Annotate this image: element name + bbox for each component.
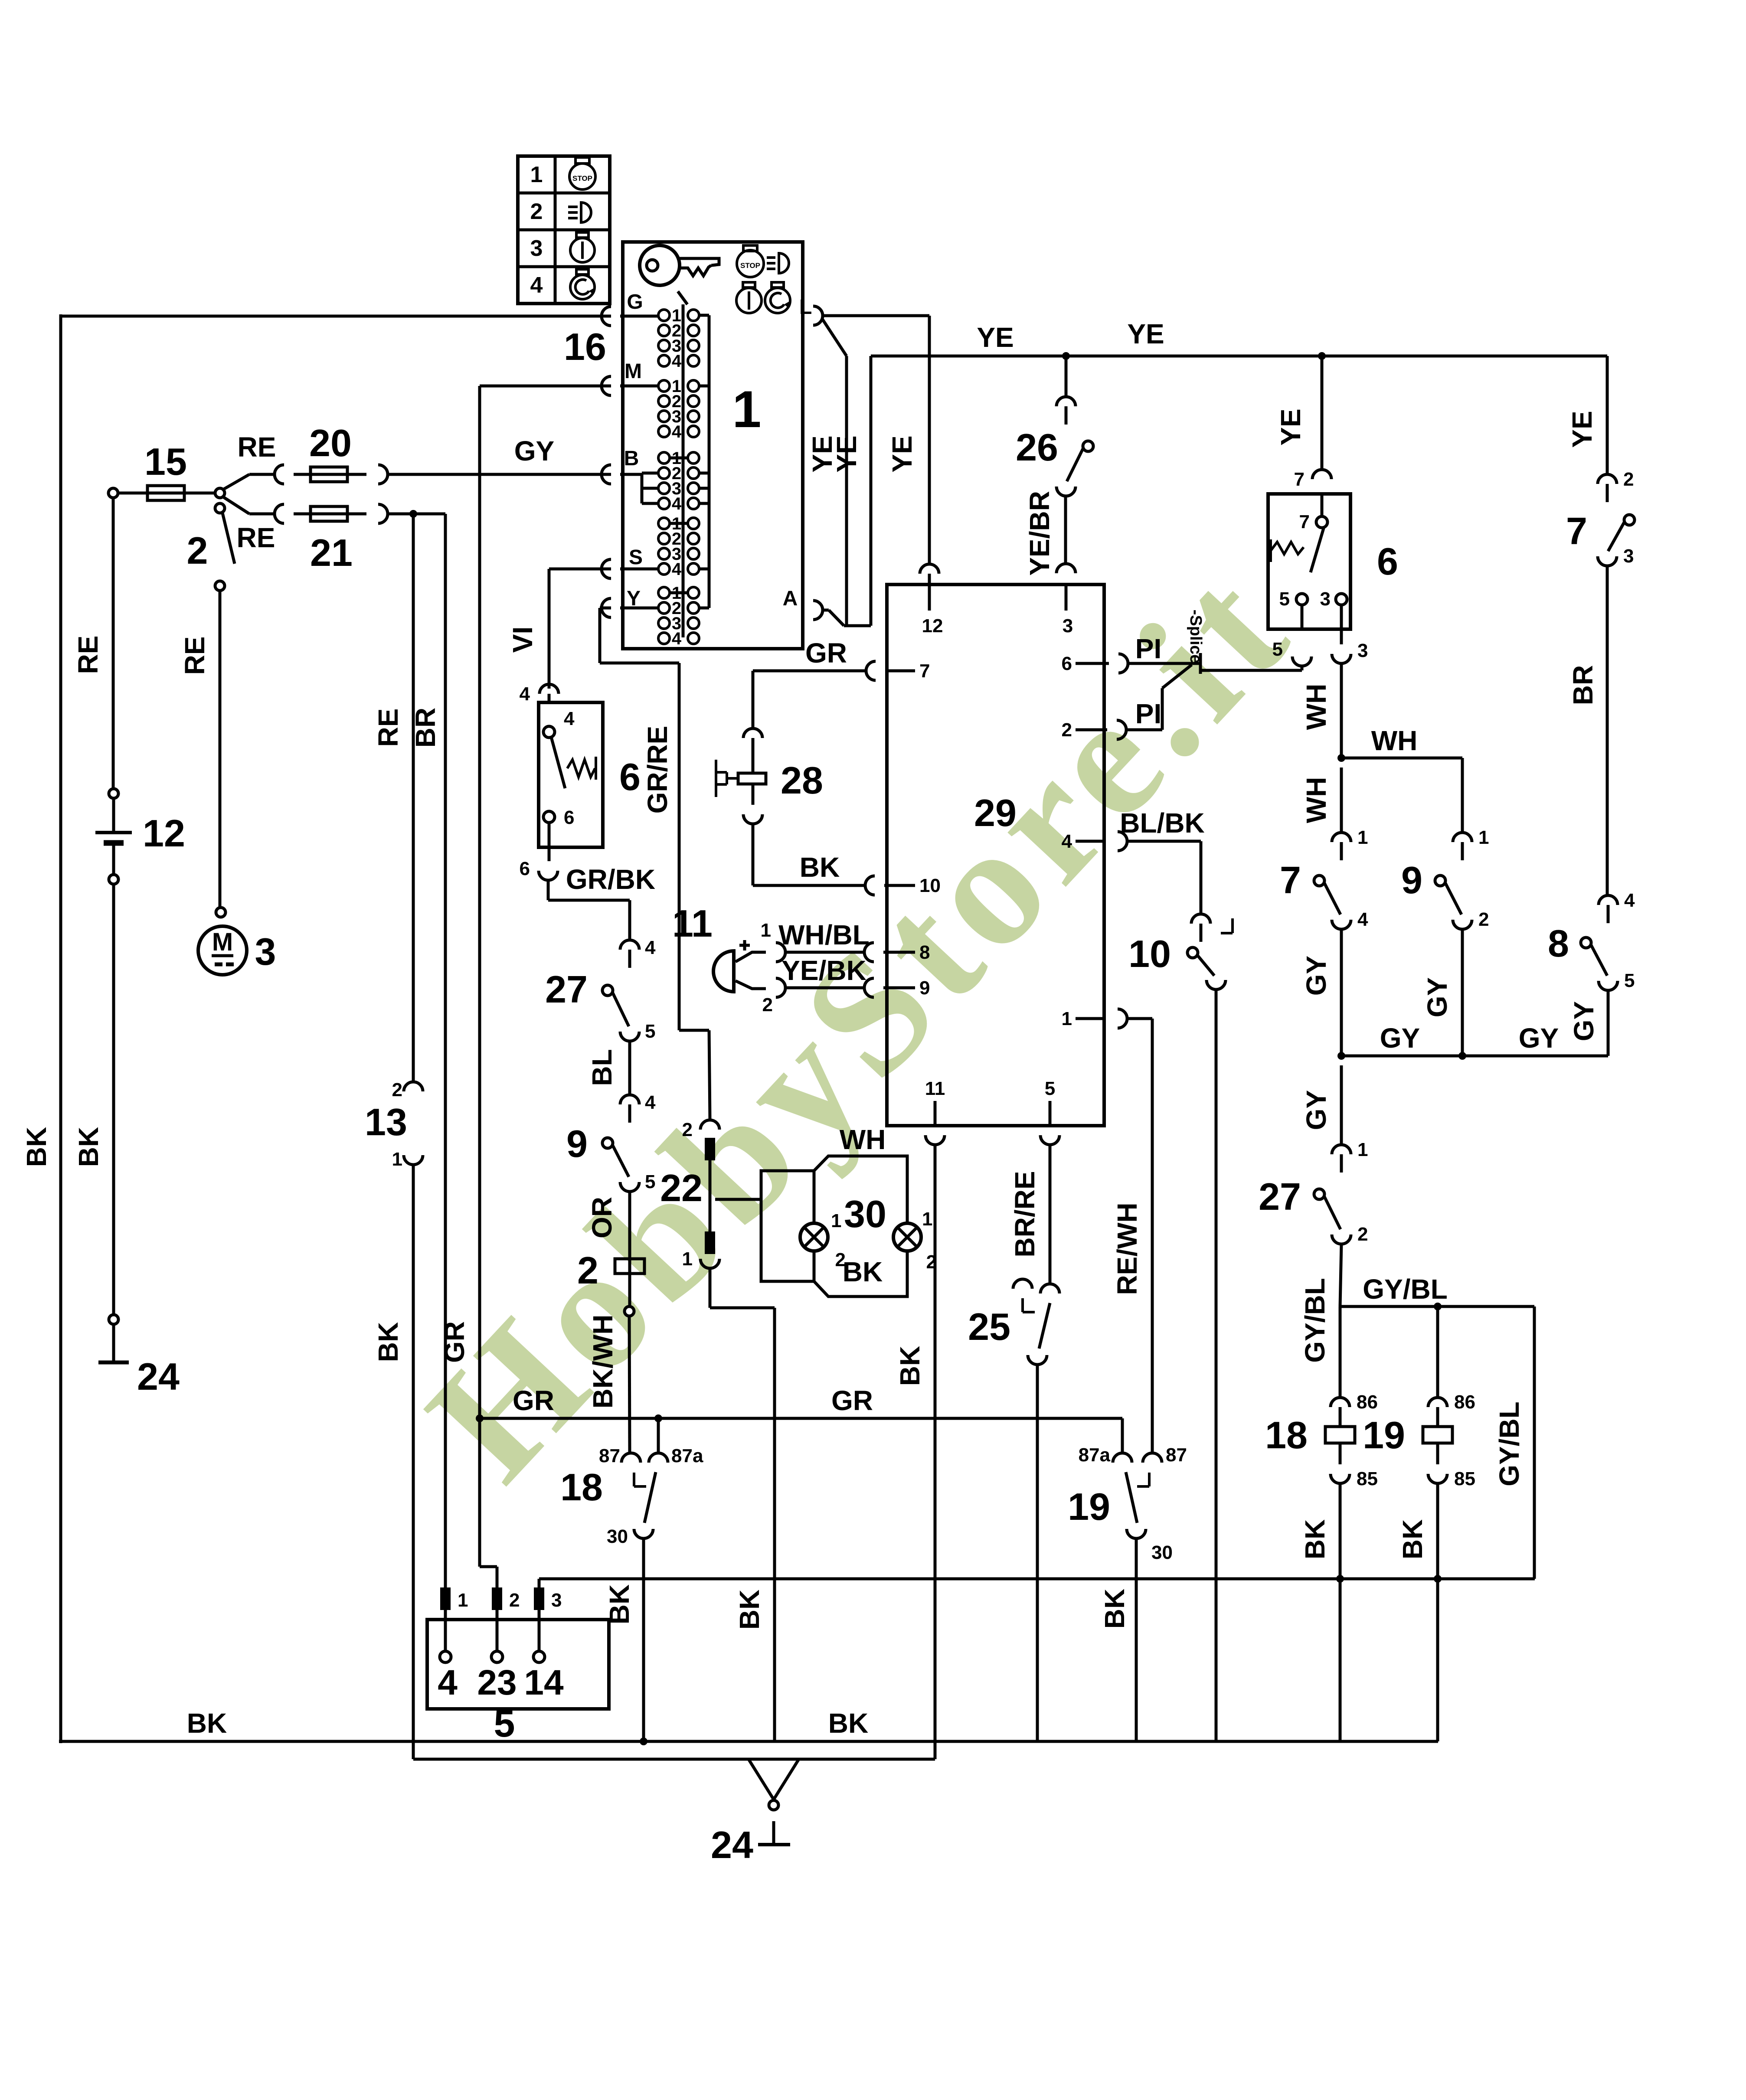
svg-text:VI: VI bbox=[507, 627, 538, 653]
svg-text:G: G bbox=[627, 291, 643, 314]
svg-text:4: 4 bbox=[645, 1092, 656, 1113]
svg-text:YE/BR: YE/BR bbox=[1024, 491, 1055, 576]
svg-text:BK/WH: BK/WH bbox=[587, 1315, 618, 1409]
svg-text:2: 2 bbox=[509, 1590, 520, 1611]
svg-text:GR: GR bbox=[439, 1321, 470, 1363]
svg-text:GY/BL: GY/BL bbox=[1363, 1274, 1448, 1305]
svg-text:1: 1 bbox=[1357, 1139, 1368, 1160]
svg-text:7: 7 bbox=[1280, 859, 1301, 901]
svg-text:6: 6 bbox=[520, 858, 530, 879]
svg-text:4: 4 bbox=[520, 683, 530, 705]
svg-text:YE: YE bbox=[831, 435, 862, 472]
svg-text:87: 87 bbox=[599, 1445, 620, 1466]
svg-text:RE: RE bbox=[373, 709, 404, 747]
svg-text:2: 2 bbox=[682, 1119, 693, 1140]
svg-text:7: 7 bbox=[1566, 509, 1587, 552]
svg-text:PI: PI bbox=[1135, 633, 1161, 664]
svg-text:2: 2 bbox=[1062, 719, 1072, 741]
svg-text:BL/BK: BL/BK bbox=[1120, 807, 1205, 839]
svg-text:11: 11 bbox=[925, 1078, 945, 1099]
svg-text:BK: BK bbox=[1299, 1519, 1331, 1559]
svg-text:YE: YE bbox=[1566, 411, 1598, 447]
svg-text:10: 10 bbox=[1128, 932, 1171, 975]
svg-text:4: 4 bbox=[530, 273, 543, 298]
svg-text:2: 2 bbox=[187, 529, 208, 572]
svg-text:87a: 87a bbox=[1079, 1444, 1111, 1466]
svg-text:3: 3 bbox=[255, 930, 276, 973]
svg-text:5: 5 bbox=[1045, 1078, 1055, 1099]
svg-text:1: 1 bbox=[682, 1248, 693, 1270]
svg-text:12: 12 bbox=[143, 812, 185, 855]
svg-text:GR/RE: GR/RE bbox=[642, 726, 673, 814]
svg-text:29: 29 bbox=[974, 791, 1017, 834]
svg-text:4: 4 bbox=[672, 422, 682, 441]
svg-text:4: 4 bbox=[1062, 831, 1072, 852]
svg-text:4: 4 bbox=[564, 708, 575, 729]
svg-text:30: 30 bbox=[1151, 1542, 1173, 1563]
svg-text:2: 2 bbox=[1357, 1224, 1368, 1245]
svg-text:19: 19 bbox=[1363, 1414, 1405, 1457]
svg-text:GY: GY bbox=[1422, 977, 1453, 1017]
svg-text:PI: PI bbox=[1135, 698, 1161, 729]
svg-text:2: 2 bbox=[762, 994, 773, 1016]
svg-text:24: 24 bbox=[137, 1355, 180, 1398]
svg-text:1: 1 bbox=[831, 1210, 841, 1231]
svg-text:7: 7 bbox=[1294, 469, 1305, 490]
svg-text:4: 4 bbox=[672, 494, 682, 513]
svg-text:4: 4 bbox=[672, 352, 682, 371]
svg-text:GY/BL: GY/BL bbox=[1299, 1278, 1331, 1363]
svg-text:-Splice: -Splice bbox=[1187, 610, 1205, 664]
svg-text:87: 87 bbox=[1166, 1444, 1187, 1466]
svg-text:4: 4 bbox=[1624, 890, 1635, 911]
svg-text:4: 4 bbox=[1357, 909, 1368, 930]
svg-text:7: 7 bbox=[919, 660, 930, 682]
svg-text:YE: YE bbox=[1275, 408, 1306, 445]
svg-text:1: 1 bbox=[1357, 827, 1368, 848]
svg-text:YE/BK: YE/BK bbox=[781, 955, 866, 986]
svg-text:15: 15 bbox=[144, 440, 187, 483]
svg-text:9: 9 bbox=[1401, 859, 1422, 901]
svg-text:GY: GY bbox=[1519, 1022, 1559, 1054]
svg-text:16: 16 bbox=[564, 325, 606, 368]
svg-text:9: 9 bbox=[566, 1122, 588, 1165]
svg-text:BK: BK bbox=[828, 1708, 868, 1739]
svg-text:22: 22 bbox=[660, 1166, 703, 1209]
svg-text:BK: BK bbox=[187, 1708, 227, 1739]
svg-text:11: 11 bbox=[672, 902, 713, 945]
svg-text:6: 6 bbox=[619, 755, 641, 798]
svg-text:5: 5 bbox=[1279, 588, 1290, 610]
svg-text:14: 14 bbox=[524, 1663, 564, 1702]
svg-text:19: 19 bbox=[1068, 1485, 1110, 1528]
svg-text:85: 85 bbox=[1357, 1468, 1378, 1489]
svg-text:6: 6 bbox=[564, 807, 574, 828]
svg-text:M: M bbox=[212, 928, 233, 956]
svg-text:26: 26 bbox=[1016, 426, 1058, 469]
svg-text:86: 86 bbox=[1357, 1391, 1378, 1413]
svg-text:10: 10 bbox=[919, 875, 941, 896]
svg-text:M: M bbox=[625, 360, 642, 383]
svg-text:1: 1 bbox=[1478, 827, 1489, 848]
svg-text:30: 30 bbox=[844, 1192, 886, 1235]
svg-text:2: 2 bbox=[577, 1249, 598, 1292]
svg-text:27: 27 bbox=[1259, 1175, 1301, 1218]
svg-text:GR: GR bbox=[831, 1385, 873, 1416]
svg-text:WH/BL: WH/BL bbox=[778, 919, 870, 950]
svg-text:86: 86 bbox=[1454, 1391, 1475, 1413]
svg-text:30: 30 bbox=[607, 1526, 628, 1547]
svg-text:B: B bbox=[624, 447, 639, 470]
svg-text:YE: YE bbox=[1127, 318, 1164, 349]
svg-text:A: A bbox=[783, 587, 798, 610]
svg-text:5: 5 bbox=[1624, 970, 1635, 991]
svg-text:RE: RE bbox=[179, 637, 210, 675]
svg-text:RE/WH: RE/WH bbox=[1112, 1202, 1143, 1295]
svg-text:6: 6 bbox=[1062, 653, 1072, 674]
svg-text:1: 1 bbox=[732, 380, 762, 438]
svg-text:STOP: STOP bbox=[740, 261, 760, 270]
svg-text:GY: GY bbox=[1301, 956, 1332, 996]
svg-text:S: S bbox=[629, 546, 643, 569]
svg-text:3: 3 bbox=[1357, 640, 1368, 661]
svg-text:BK: BK bbox=[1397, 1519, 1428, 1559]
svg-text:BK: BK bbox=[73, 1127, 104, 1167]
svg-text:1: 1 bbox=[1062, 1008, 1072, 1029]
svg-text:5: 5 bbox=[645, 1021, 655, 1042]
svg-text:3: 3 bbox=[551, 1590, 562, 1611]
svg-text:BK: BK bbox=[1099, 1589, 1130, 1629]
svg-text:5: 5 bbox=[645, 1171, 655, 1192]
svg-text:BR/RE: BR/RE bbox=[1009, 1171, 1040, 1257]
svg-text:BR: BR bbox=[410, 708, 441, 748]
svg-text:RE: RE bbox=[72, 636, 104, 674]
svg-text:BR: BR bbox=[1567, 665, 1599, 705]
svg-text:24: 24 bbox=[711, 1823, 753, 1866]
svg-text:GY: GY bbox=[514, 435, 554, 467]
svg-text:9: 9 bbox=[919, 977, 930, 999]
svg-text:BK: BK bbox=[734, 1590, 765, 1630]
svg-text:RE: RE bbox=[237, 522, 275, 553]
svg-text:4: 4 bbox=[645, 937, 656, 958]
svg-text:GY: GY bbox=[1380, 1022, 1420, 1054]
svg-text:3: 3 bbox=[1063, 615, 1073, 637]
svg-text:RE: RE bbox=[238, 431, 276, 463]
svg-text:BK: BK bbox=[843, 1256, 883, 1287]
svg-text:18: 18 bbox=[560, 1466, 603, 1509]
svg-text:3: 3 bbox=[530, 236, 543, 261]
svg-text:BK: BK bbox=[21, 1127, 52, 1167]
svg-text:2: 2 bbox=[1623, 469, 1634, 490]
svg-text:23: 23 bbox=[477, 1663, 517, 1702]
svg-text:WH: WH bbox=[1301, 684, 1332, 730]
svg-text:BL: BL bbox=[586, 1049, 618, 1086]
svg-text:4: 4 bbox=[672, 629, 682, 648]
svg-text:BK: BK bbox=[604, 1584, 635, 1624]
svg-text:8: 8 bbox=[919, 942, 930, 963]
svg-text:3: 3 bbox=[1320, 588, 1331, 610]
svg-text:GR: GR bbox=[805, 637, 847, 669]
svg-text:WH: WH bbox=[840, 1124, 886, 1155]
svg-text:GY/BL: GY/BL bbox=[1494, 1401, 1525, 1486]
svg-text:6: 6 bbox=[1377, 540, 1398, 583]
svg-text:OR: OR bbox=[586, 1197, 618, 1238]
svg-text:STOP: STOP bbox=[572, 174, 592, 183]
svg-text:GR: GR bbox=[513, 1385, 554, 1416]
svg-text:YE: YE bbox=[977, 322, 1014, 353]
svg-text:1: 1 bbox=[761, 920, 771, 941]
svg-text:BK: BK bbox=[894, 1346, 925, 1386]
svg-text:BK: BK bbox=[373, 1322, 404, 1362]
svg-text:27: 27 bbox=[545, 968, 588, 1011]
svg-text:GY: GY bbox=[1568, 1001, 1599, 1041]
svg-text:18: 18 bbox=[1265, 1414, 1308, 1457]
svg-text:12: 12 bbox=[922, 615, 943, 637]
svg-text:85: 85 bbox=[1454, 1468, 1475, 1489]
svg-text:BK: BK bbox=[800, 852, 840, 883]
svg-text:GY: GY bbox=[1301, 1090, 1332, 1130]
svg-text:1: 1 bbox=[530, 162, 543, 187]
svg-text:5: 5 bbox=[1272, 639, 1283, 660]
svg-text:28: 28 bbox=[781, 759, 823, 802]
svg-text:13: 13 bbox=[365, 1101, 407, 1143]
svg-text:4: 4 bbox=[438, 1663, 458, 1702]
svg-text:GR/BK: GR/BK bbox=[566, 864, 655, 895]
svg-text:3: 3 bbox=[1623, 545, 1634, 567]
svg-text:2: 2 bbox=[392, 1079, 402, 1101]
svg-text:1: 1 bbox=[458, 1590, 468, 1611]
svg-text:7: 7 bbox=[1299, 511, 1310, 532]
svg-text:25: 25 bbox=[968, 1305, 1010, 1348]
svg-text:YE: YE bbox=[886, 435, 918, 472]
svg-text:2: 2 bbox=[530, 199, 543, 224]
svg-text:1: 1 bbox=[922, 1208, 932, 1230]
svg-text:21: 21 bbox=[310, 531, 353, 574]
svg-text:8: 8 bbox=[1548, 922, 1569, 965]
svg-text:L: L bbox=[799, 296, 812, 319]
svg-text:1: 1 bbox=[392, 1149, 402, 1170]
svg-text:87a: 87a bbox=[671, 1445, 703, 1466]
svg-text:20: 20 bbox=[309, 421, 352, 464]
svg-text:5: 5 bbox=[494, 1702, 515, 1745]
svg-text:2: 2 bbox=[1478, 909, 1489, 930]
svg-text:WH: WH bbox=[1301, 777, 1332, 823]
svg-text:4: 4 bbox=[672, 560, 682, 579]
svg-text:WH: WH bbox=[1371, 725, 1418, 756]
